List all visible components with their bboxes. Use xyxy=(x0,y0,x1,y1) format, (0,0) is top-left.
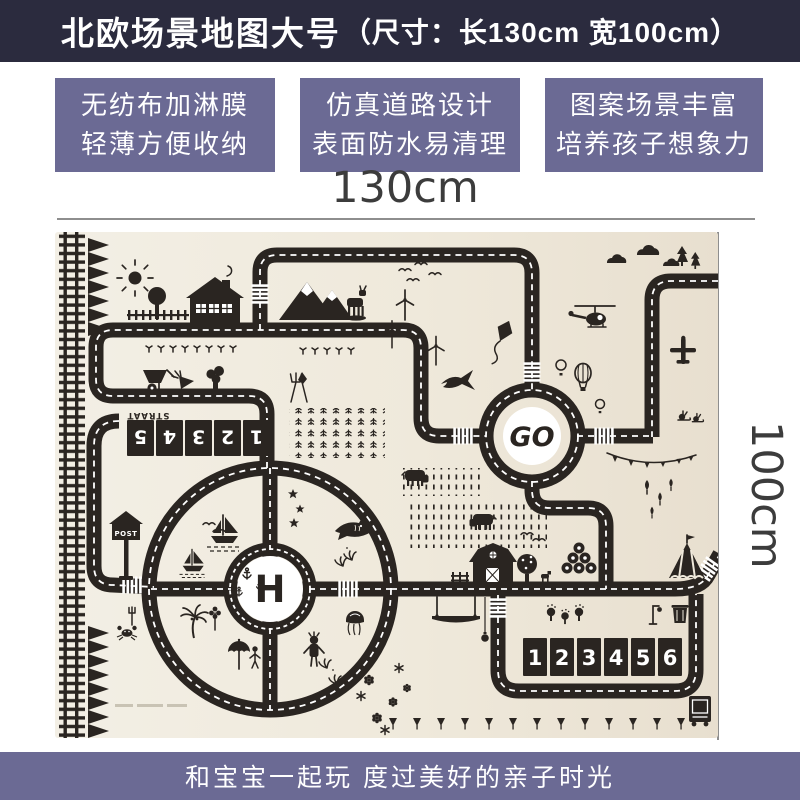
post-box-label: POST xyxy=(115,530,138,538)
parking-row-top: 1 2 3 4 5 xyxy=(127,420,270,456)
parking-number: 6 xyxy=(663,646,678,670)
footer-caption: 和宝宝一起玩 度过美好的亲子时光 xyxy=(185,758,615,794)
footer-banner: 和宝宝一起玩 度过美好的亲子时光 xyxy=(0,752,800,800)
go-roundabout: GO xyxy=(503,407,561,465)
parking-number: 5 xyxy=(134,426,147,448)
parking-number: 1 xyxy=(528,646,543,670)
feature-box-road-design: 仿真道路设计 表面防水易清理 xyxy=(300,78,520,172)
page-title: 北欧场景地图大号 xyxy=(61,7,341,55)
watermark-marks xyxy=(115,704,187,707)
feature-box-imagination: 图案场景丰富 培养孩子想象力 xyxy=(545,78,763,172)
wheat-field xyxy=(289,408,385,458)
feature-line: 无纺布加淋膜 xyxy=(81,86,249,125)
feature-line: 图案场景丰富 xyxy=(570,86,738,125)
width-dimension-label: 130cm xyxy=(55,163,755,213)
width-dimension-line xyxy=(57,218,755,220)
parking-number: 4 xyxy=(609,646,624,670)
parking-number: 4 xyxy=(163,426,176,448)
feature-line: 培养孩子想象力 xyxy=(556,125,752,164)
feature-box-material: 无纺布加淋膜 轻薄方便收纳 xyxy=(55,78,275,172)
parking-number: 1 xyxy=(250,426,263,448)
railway-track-icon xyxy=(59,232,85,738)
street-name-label: STRAAT xyxy=(127,410,170,420)
parking-number: 2 xyxy=(221,426,234,448)
go-roundabout-label: GO xyxy=(509,422,554,453)
truck-icon xyxy=(689,696,711,726)
height-dimension-label: 100cm xyxy=(745,421,791,561)
helipad: H xyxy=(237,556,303,622)
parking-number: 3 xyxy=(582,646,597,670)
sun-icon xyxy=(117,260,153,296)
playmat-image: GO H 1 2 3 4 5 STRAAT 1 2 3 4 5 6 xyxy=(55,232,718,738)
parking-number: 2 xyxy=(555,646,570,670)
parking-number: 5 xyxy=(636,646,651,670)
parking-number: 3 xyxy=(192,426,205,448)
page-title-size: （尺寸：长130cm 宽100cm） xyxy=(343,11,739,51)
feature-line: 轻薄方便收纳 xyxy=(81,125,249,164)
title-banner: 北欧场景地图大号 （尺寸：长130cm 宽100cm） xyxy=(0,0,800,62)
feature-line: 表面防水易清理 xyxy=(312,125,508,164)
feature-line: 仿真道路设计 xyxy=(326,86,494,125)
